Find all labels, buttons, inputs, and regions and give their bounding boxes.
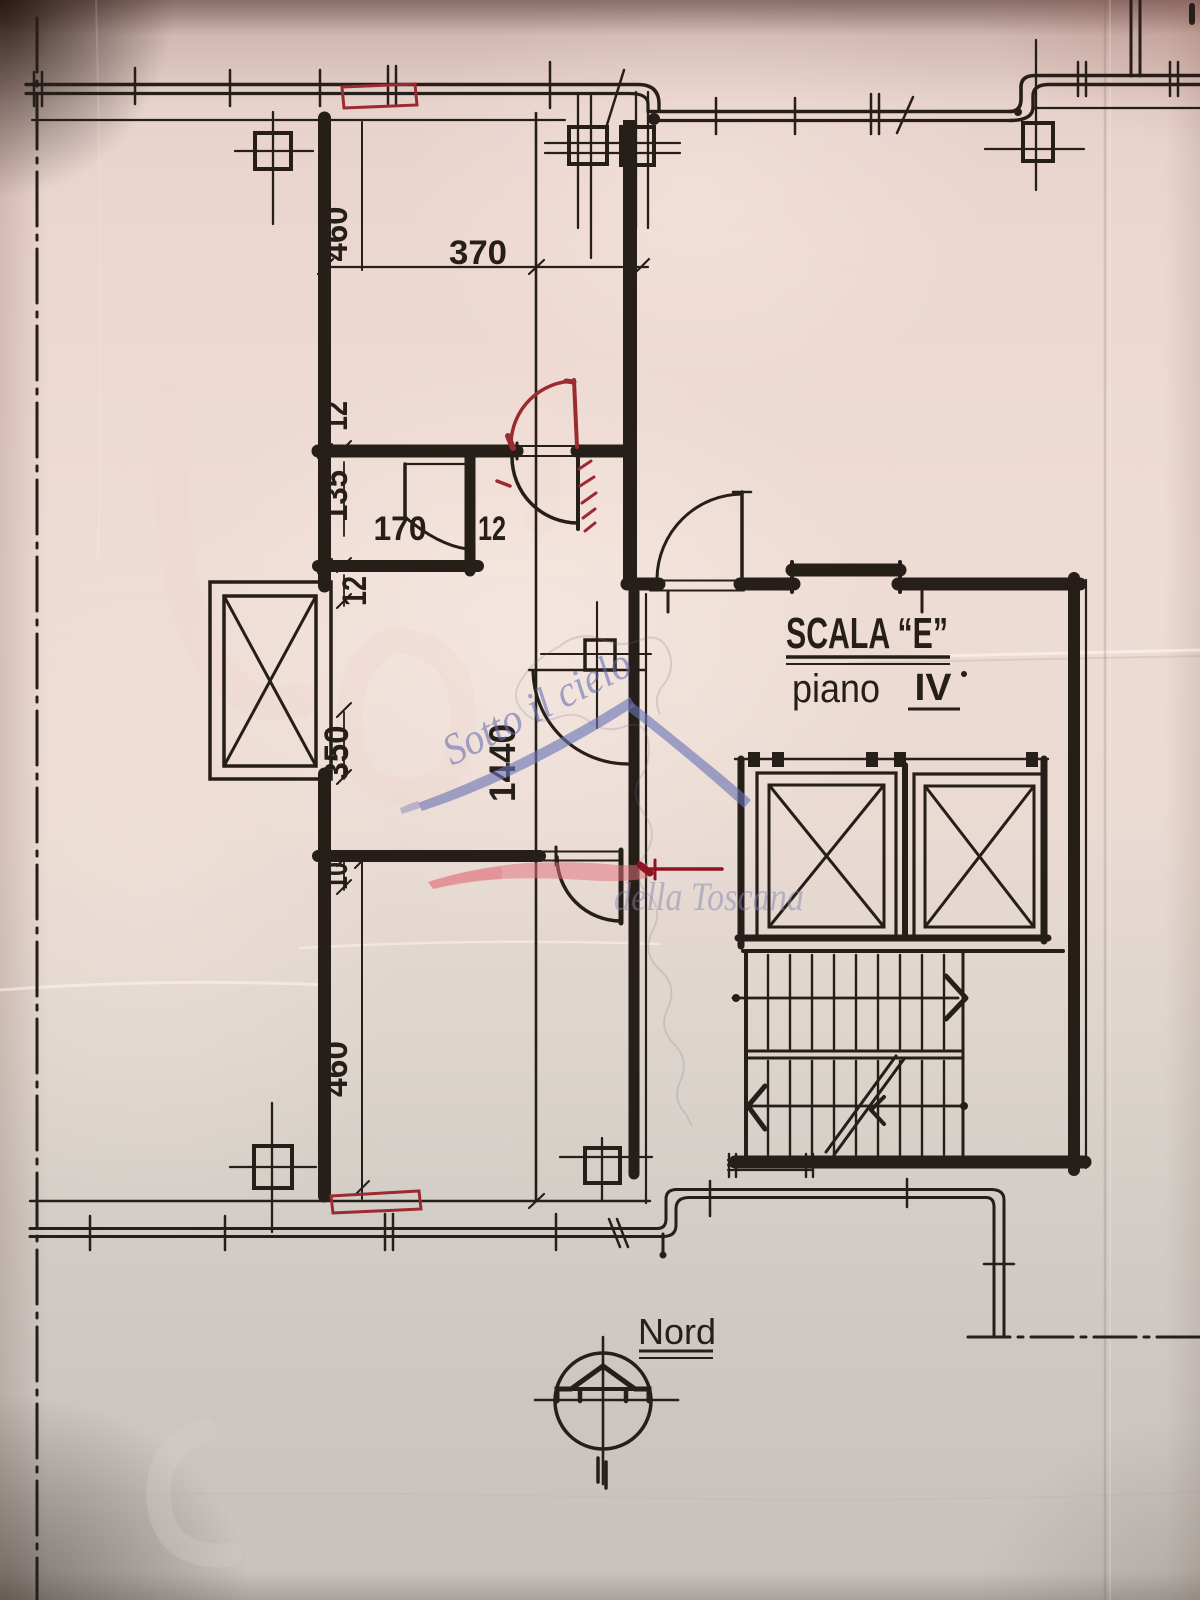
svg-text:135: 135: [317, 470, 355, 522]
svg-text:della Toscana: della Toscana: [614, 874, 804, 919]
svg-text:170: 170: [374, 510, 427, 548]
svg-text:12: 12: [478, 510, 506, 548]
svg-text:12: 12: [336, 576, 374, 606]
svg-text:12: 12: [317, 401, 355, 431]
svg-text:460: 460: [317, 207, 355, 262]
svg-text:piano: piano: [792, 667, 880, 711]
svg-text:Nord: Nord: [638, 1311, 716, 1352]
svg-text:370: 370: [449, 234, 507, 272]
svg-text:10: 10: [317, 862, 355, 890]
svg-text:460: 460: [317, 1041, 355, 1097]
svg-text:SCALA “E”: SCALA “E”: [786, 609, 948, 658]
svg-text:350: 350: [318, 726, 356, 781]
svg-text:IV: IV: [915, 667, 953, 709]
